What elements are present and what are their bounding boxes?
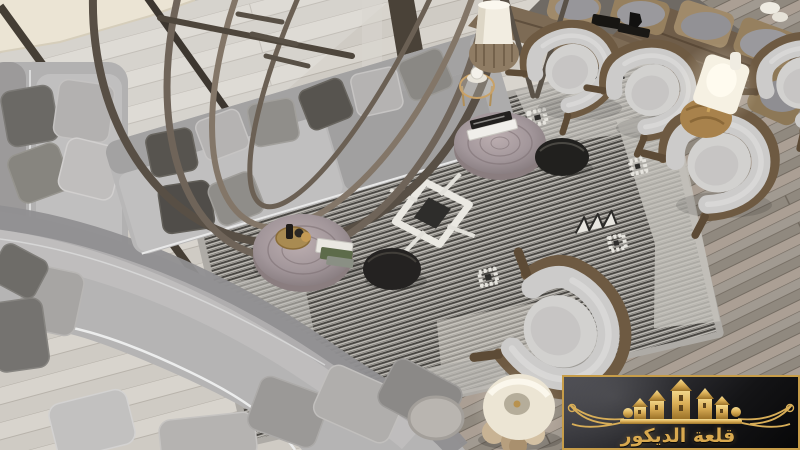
- castle-icon: [564, 379, 798, 429]
- plate: [772, 12, 788, 22]
- living-room-photo: قلعة الديكور: [0, 0, 800, 450]
- vase: [730, 52, 741, 70]
- brand-watermark: قلعة الديكور: [562, 375, 800, 450]
- side-table-dark-1: [535, 138, 589, 176]
- side-table-dark-2: [363, 248, 421, 290]
- plate: [760, 2, 780, 14]
- bottle: [286, 224, 293, 239]
- brand-text: قلعة الديكور: [564, 425, 792, 447]
- stool-stump: [409, 397, 463, 439]
